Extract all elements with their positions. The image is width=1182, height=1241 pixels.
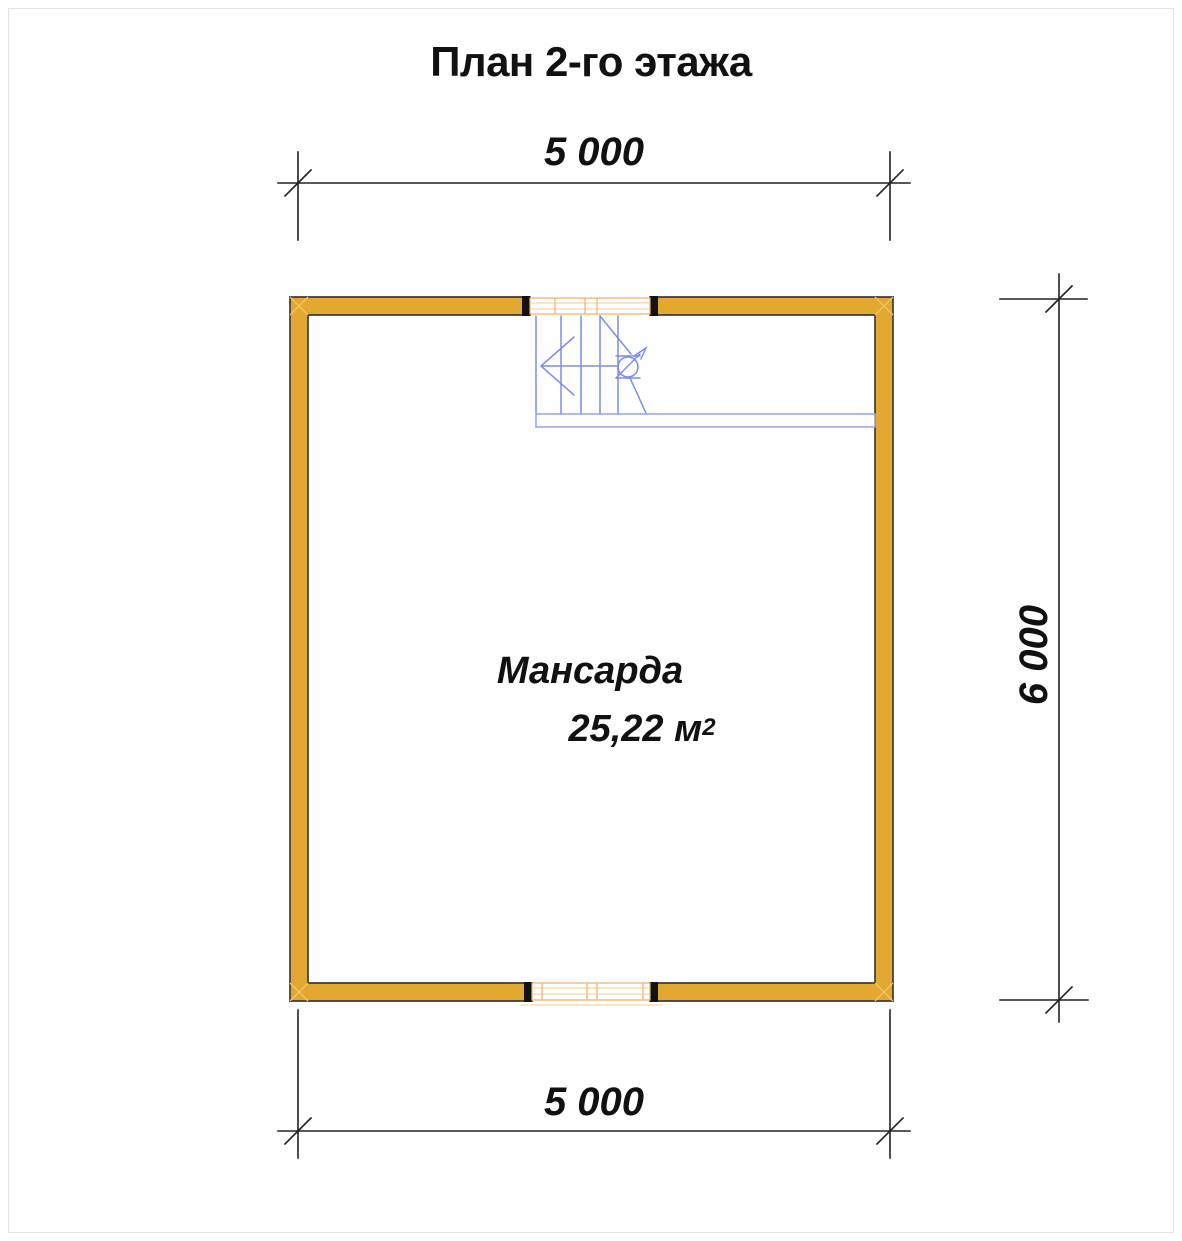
stair-direction-arrow-icon [541, 337, 618, 395]
floor-plan-drawing [0, 0, 1182, 1241]
window-bottom [520, 983, 663, 1005]
stair-railing [536, 414, 875, 427]
dimension-top-label: 5 000 [294, 130, 894, 175]
room-area-value: 25,22 м [568, 708, 702, 750]
room-area-superscript: 2 [702, 714, 715, 741]
staircase [536, 316, 875, 427]
room-name: Мансарда [290, 650, 890, 693]
room-area: 25,22 м2 [342, 708, 942, 751]
wall-end-caps [522, 296, 658, 1002]
floor-plan-page: План 2-го этажа 5 000 5 000 6 000 Мансар… [0, 0, 1182, 1241]
dimension-right-label: 6 000 [1012, 545, 1058, 765]
exterior-walls [290, 296, 893, 1002]
corner-joints [290, 297, 893, 1001]
dimension-bottom-label: 5 000 [294, 1080, 894, 1125]
page-title: План 2-го этажа [0, 38, 1182, 86]
window-top [530, 298, 650, 314]
